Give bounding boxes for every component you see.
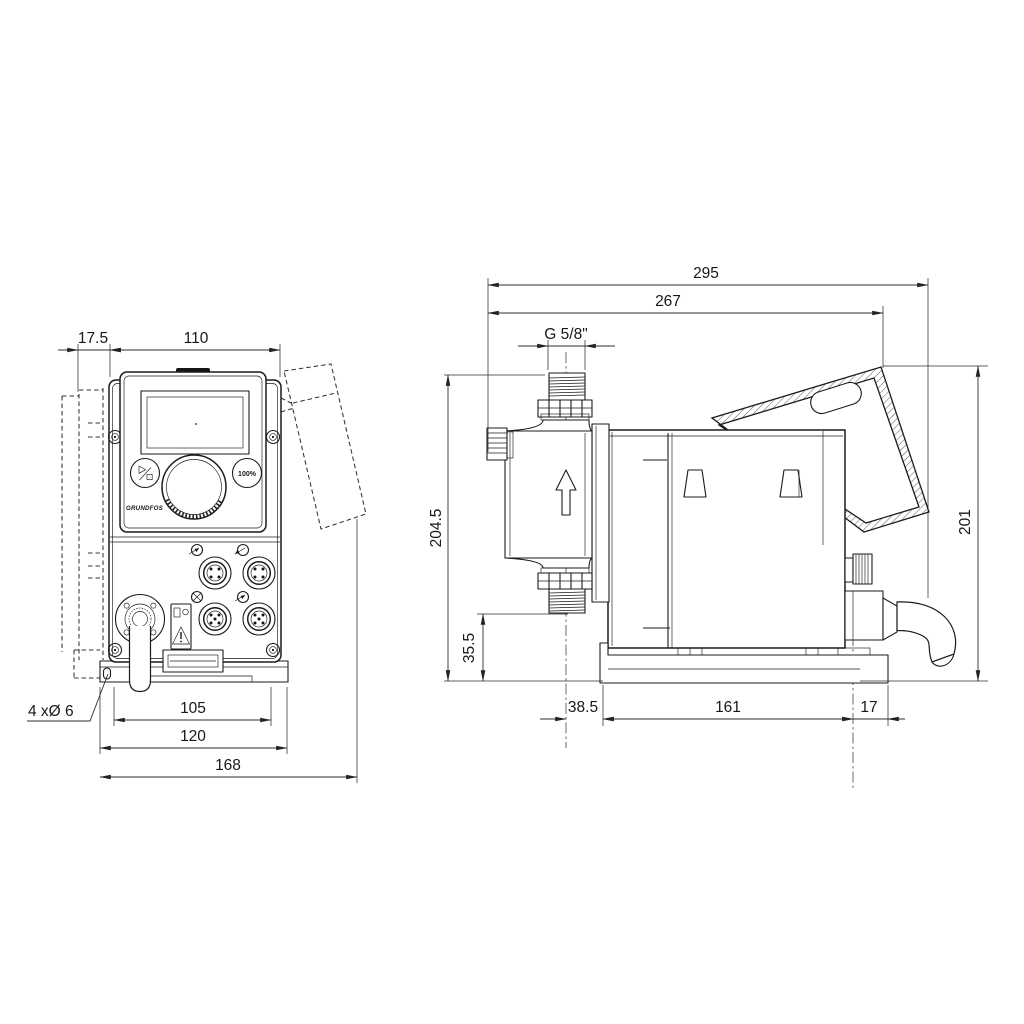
thread-label: G 5/8" [544,326,587,343]
dim-control-width: 110 [110,330,280,350]
hidden-cover-flap-dashed [281,364,366,529]
dim-label: 267 [655,293,681,310]
dim-total-width: 168 [100,757,357,777]
suction-connection-thread [549,373,585,400]
dim-label: 38.5 [568,699,598,716]
brand-logo: GRUNDFOS [126,505,164,512]
m12-connector[interactable] [243,603,275,635]
mounting-holes-label: 4 xØ 6 [28,703,74,720]
dim-label: 17.5 [78,330,108,347]
dim-body-length: 267 [488,293,883,313]
drawing-page: 100% GRUNDFOS [0,0,1024,1024]
dim-label: 110 [184,330,209,347]
dim-label: 35.5 [461,633,478,663]
dim-hole-pitch: 105 [114,700,271,720]
dim-valve-height: 35.5 [461,614,568,681]
display [141,391,249,454]
dosing-head [487,373,609,613]
dim-base-overhang: 17 [836,699,905,719]
dim-connection-thread: G 5/8" [518,326,615,370]
m12-connector[interactable] [199,603,231,635]
power-cable [130,626,151,692]
dim-center-offset: 38.5 [540,699,629,719]
base-plate-side [600,643,888,683]
valve-nut [538,400,592,420]
dim-label: 201 [957,509,974,535]
hidden-head-profile-dashed [62,388,103,678]
valve-nut [538,573,592,589]
cable-gland-side [845,554,956,666]
discharge-connection-thread [549,589,585,613]
dim-label: 168 [215,757,241,774]
dim-label: 295 [693,265,719,282]
rail-release-tab [163,650,223,672]
dim-plate-width: 120 [100,728,287,748]
dim-total-length: 295 [488,265,928,285]
dim-label: 17 [860,699,877,716]
dim-flange-offset: 17.5 [58,330,130,350]
control-panel: 100% GRUNDFOS [120,368,266,532]
pump-dimensional-drawing: 100% GRUNDFOS [0,0,1024,1024]
dim-label: 105 [180,700,206,717]
pump-body-side [608,430,845,655]
capacity-button-label: 100% [238,471,257,478]
mounting-holes-callout: 4 xØ 6 [27,674,108,721]
front-view: 100% GRUNDFOS [27,330,366,783]
dim-label: 204.5 [428,509,445,548]
dim-label: 161 [715,699,741,716]
click-wheel[interactable] [162,455,226,519]
dim-base-length: 161 [603,699,853,719]
dim-label: 120 [180,728,206,745]
warning-label [171,604,191,649]
side-view: 295 267 G 5/8" 204.5 [428,265,988,790]
start-stop-button[interactable] [131,459,160,488]
mains-cable [897,602,956,662]
capacity-100-button[interactable]: 100% [233,459,262,488]
